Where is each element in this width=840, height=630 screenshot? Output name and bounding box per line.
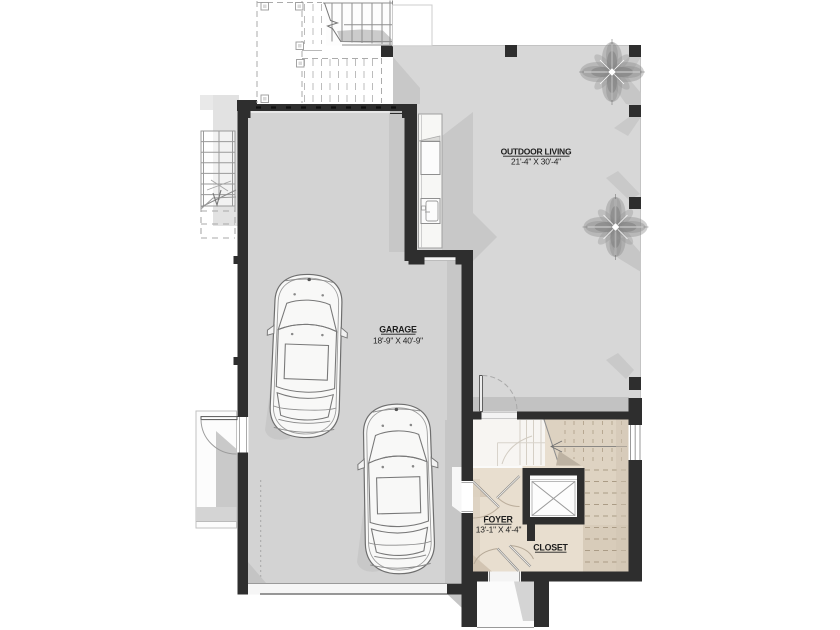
svg-text:GARAGE: GARAGE bbox=[379, 325, 417, 335]
svg-text:18'-9" X 40'-9": 18'-9" X 40'-9" bbox=[373, 336, 423, 346]
svg-text:OUTDOOR LIVING: OUTDOOR LIVING bbox=[501, 147, 572, 157]
svg-text:13'-1" X 4'-4": 13'-1" X 4'-4" bbox=[476, 525, 522, 535]
svg-text:FOYER: FOYER bbox=[483, 515, 513, 525]
svg-text:CLOSET: CLOSET bbox=[533, 543, 568, 553]
svg-text:21'-4" X 30'-4": 21'-4" X 30'-4" bbox=[511, 157, 561, 167]
